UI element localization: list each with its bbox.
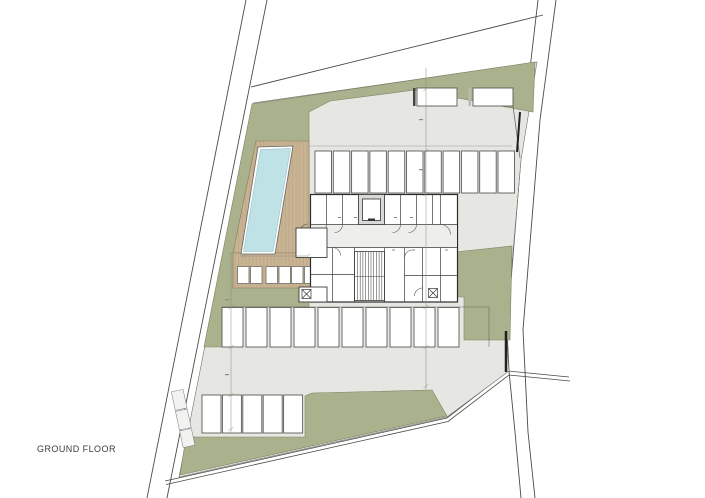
annex-room	[296, 228, 327, 258]
building-core	[296, 195, 458, 303]
sun-lounger	[292, 267, 304, 284]
parking-row-middle	[222, 307, 489, 347]
floor-plan-drawing	[0, 0, 705, 498]
sun-lounger	[238, 267, 250, 284]
parking-row-bottom	[202, 395, 303, 433]
elevator	[359, 195, 385, 225]
corridor	[311, 225, 457, 248]
sun-loungers	[238, 267, 317, 284]
sun-lounger	[251, 267, 263, 284]
floor-label: GROUND FLOOR	[37, 444, 116, 454]
sun-lounger	[279, 267, 291, 284]
parking-row-upper	[315, 151, 515, 193]
floor-plan-page: GROUND FLOOR	[0, 0, 705, 498]
sun-lounger	[266, 267, 278, 284]
